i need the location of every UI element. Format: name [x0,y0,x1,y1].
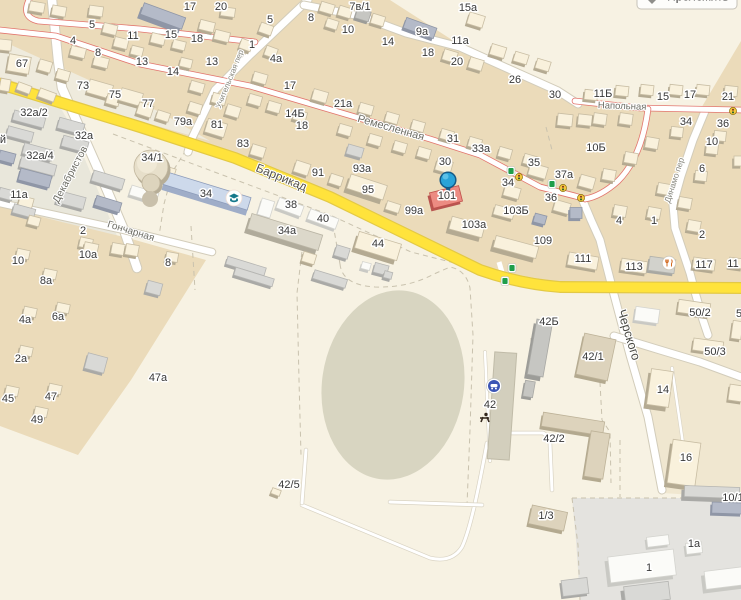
svg-text:99а: 99а [405,205,424,217]
svg-text:34: 34 [502,177,514,189]
svg-text:4а: 4а [19,314,32,326]
svg-text:6: 6 [699,163,705,175]
svg-text:14: 14 [382,36,394,48]
svg-text:2: 2 [699,229,705,241]
svg-text:1а: 1а [688,538,701,550]
svg-text:33а: 33а [472,143,491,155]
svg-text:18: 18 [296,120,308,132]
svg-text:10/1: 10/1 [722,492,741,504]
svg-text:103а: 103а [462,219,487,231]
svg-text:91: 91 [312,167,324,179]
svg-text:9а: 9а [416,26,429,38]
svg-text:45: 45 [2,393,14,405]
svg-text:16: 16 [680,452,692,464]
svg-text:49: 49 [31,414,43,426]
svg-text:44: 44 [372,238,384,250]
svg-text:1: 1 [646,562,652,574]
svg-text:20: 20 [215,1,227,13]
svg-text:79а: 79а [174,116,193,128]
svg-text:й: й [0,134,6,146]
svg-text:5: 5 [89,19,95,31]
svg-text:32а: 32а [75,130,94,142]
svg-text:81: 81 [211,119,223,131]
svg-text:1/3: 1/3 [538,510,553,522]
svg-text:11а: 11а [451,35,469,47]
svg-text:77: 77 [142,98,154,110]
svg-text:2а: 2а [15,353,28,365]
svg-text:11: 11 [127,30,138,42]
svg-text:42/1: 42/1 [582,351,603,363]
svg-text:Напольная: Напольная [598,100,647,113]
svg-text:38: 38 [285,199,297,211]
svg-text:14: 14 [167,66,179,78]
svg-text:17: 17 [284,80,296,92]
svg-text:34а: 34а [278,225,297,237]
svg-text:42/5: 42/5 [278,479,299,491]
svg-text:5: 5 [736,308,741,320]
svg-text:103Б: 103Б [503,205,529,217]
svg-text:31: 31 [447,133,459,145]
svg-text:17: 17 [184,1,196,13]
svg-text:101: 101 [438,190,456,202]
svg-text:11а: 11а [10,189,28,201]
svg-text:47а: 47а [149,372,168,384]
svg-text:4: 4 [70,35,76,47]
svg-text:6а: 6а [52,311,65,323]
svg-text:50/2: 50/2 [689,307,710,319]
svg-text:73: 73 [77,80,89,92]
svg-text:35: 35 [528,157,540,169]
svg-text:40: 40 [317,213,329,225]
svg-text:30: 30 [549,89,561,101]
svg-text:32а/4: 32а/4 [26,150,54,162]
svg-text:1: 1 [249,39,255,51]
svg-text:14: 14 [657,384,669,396]
svg-text:11Б: 11Б [594,88,613,100]
svg-text:4: 4 [616,215,622,227]
svg-text:15: 15 [657,91,669,103]
svg-text:21а: 21а [334,98,353,110]
svg-text:8: 8 [165,257,171,269]
svg-text:34: 34 [680,116,692,128]
svg-text:11: 11 [727,258,738,270]
svg-text:42/2: 42/2 [543,433,564,445]
svg-text:95: 95 [362,184,374,196]
svg-text:5: 5 [267,14,273,26]
svg-text:10: 10 [12,255,24,267]
svg-text:111: 111 [575,253,592,265]
svg-text:93а: 93а [353,163,372,175]
svg-text:2: 2 [80,225,86,237]
svg-text:Проложить: Проложить [667,0,729,4]
svg-text:26: 26 [509,74,521,86]
svg-text:42Б: 42Б [539,316,558,328]
svg-text:14Б: 14Б [285,108,304,120]
svg-text:18: 18 [191,33,203,45]
svg-text:13: 13 [136,56,148,68]
svg-text:10Б: 10Б [586,142,605,154]
svg-text:4а: 4а [270,53,283,65]
svg-text:47: 47 [45,391,57,403]
svg-text:17: 17 [684,89,696,101]
svg-text:36: 36 [545,192,557,204]
svg-text:75: 75 [109,89,121,101]
svg-text:117: 117 [695,259,713,271]
svg-text:1: 1 [651,215,657,227]
svg-text:113: 113 [625,261,643,273]
svg-text:36: 36 [717,118,729,130]
svg-text:37а: 37а [555,169,574,181]
svg-text:8: 8 [95,47,101,59]
svg-text:20: 20 [451,56,463,68]
svg-text:67: 67 [16,58,28,70]
svg-text:109: 109 [534,235,552,247]
svg-text:10: 10 [706,136,718,148]
svg-text:13: 13 [206,56,218,68]
svg-text:83: 83 [237,138,249,150]
svg-text:50/3: 50/3 [704,346,725,358]
svg-text:42: 42 [484,399,496,411]
svg-text:32а/2: 32а/2 [20,107,48,119]
svg-text:10а: 10а [79,249,98,261]
svg-text:34/1: 34/1 [141,152,162,164]
svg-text:8: 8 [308,12,314,24]
svg-text:7в/1: 7в/1 [349,1,370,13]
svg-text:15а: 15а [459,2,478,14]
svg-text:18: 18 [422,47,434,59]
svg-text:30: 30 [439,156,451,168]
svg-text:10: 10 [342,24,354,36]
svg-text:21: 21 [722,91,734,103]
svg-text:15: 15 [165,29,177,41]
svg-text:34: 34 [200,188,212,200]
svg-text:8а: 8а [40,275,53,287]
